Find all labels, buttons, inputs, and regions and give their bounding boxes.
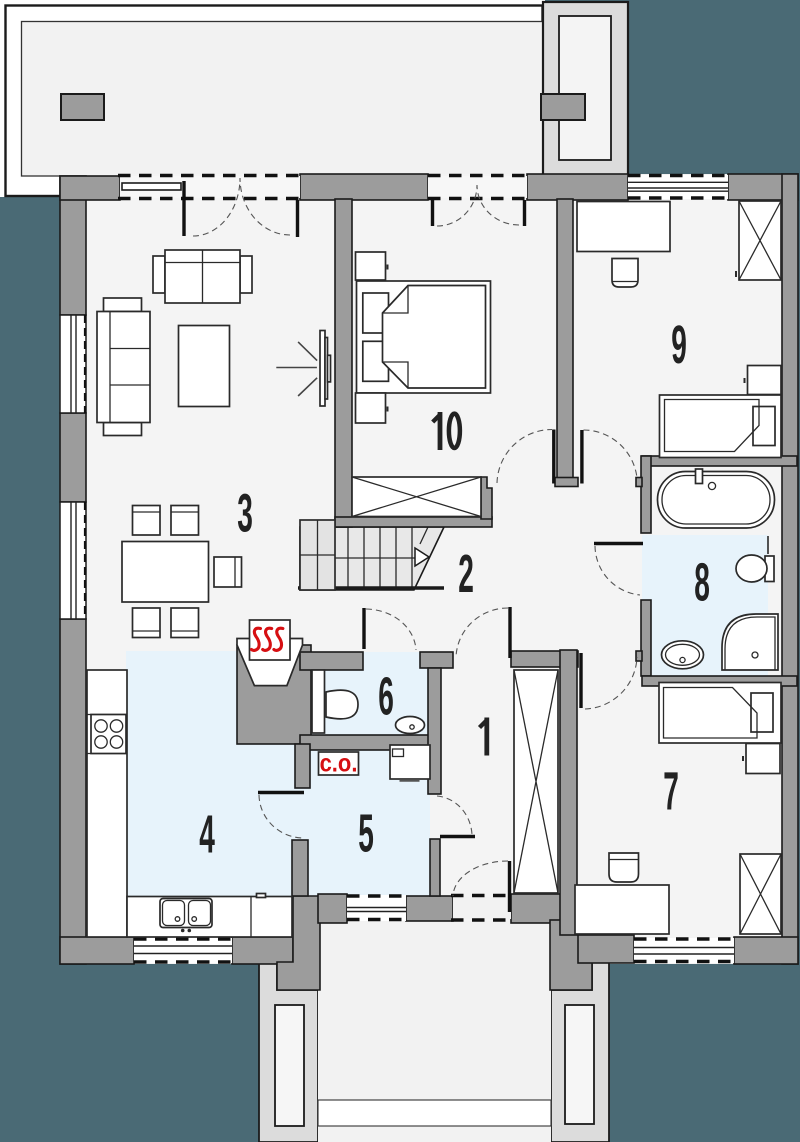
svg-text:3: 3 [237, 484, 253, 544]
svg-text:4: 4 [199, 805, 215, 865]
svg-text:9: 9 [671, 315, 687, 375]
svg-text:8: 8 [694, 553, 710, 613]
svg-text:6: 6 [378, 667, 394, 727]
svg-text:2: 2 [458, 544, 474, 604]
svg-text:7: 7 [663, 762, 679, 822]
svg-text:c.o.: c.o. [320, 749, 358, 777]
svg-text:5: 5 [358, 804, 374, 864]
